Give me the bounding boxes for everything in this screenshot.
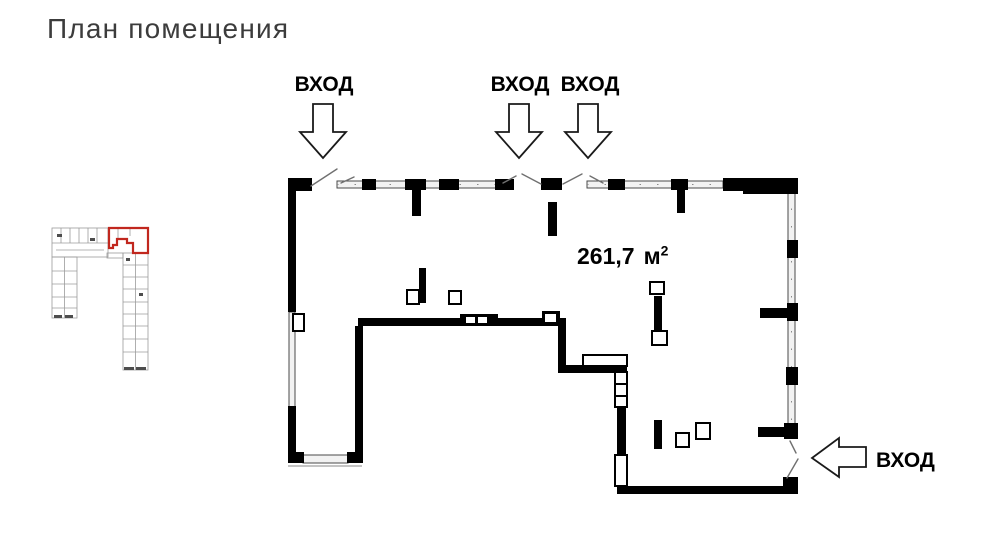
walls: [288, 178, 798, 494]
entrance-label-top-right: ВХОД: [558, 73, 622, 97]
entrance-arrow-down-2-icon: [496, 104, 542, 158]
entrance-arrow-down-1-icon: [300, 104, 346, 158]
entrance-arrow-left-icon: [812, 438, 866, 477]
entrance-label-top-left: ВХОД: [292, 73, 356, 97]
entrance-arrows: [300, 104, 866, 477]
area-value: 261,7: [577, 243, 635, 269]
floor-plan-page: План помещения: [0, 0, 1000, 535]
area-unit-superscript: 2: [661, 242, 669, 258]
entrance-label-right: ВХОД: [876, 449, 948, 473]
building-minimap: [52, 228, 148, 370]
area-unit: м: [644, 243, 661, 269]
entrance-label-top-center: ВХОД: [488, 73, 552, 97]
entrance-arrow-down-3-icon: [565, 104, 611, 158]
selected-unit-outline: [109, 228, 148, 253]
area-label: 261,7м2: [577, 243, 668, 270]
